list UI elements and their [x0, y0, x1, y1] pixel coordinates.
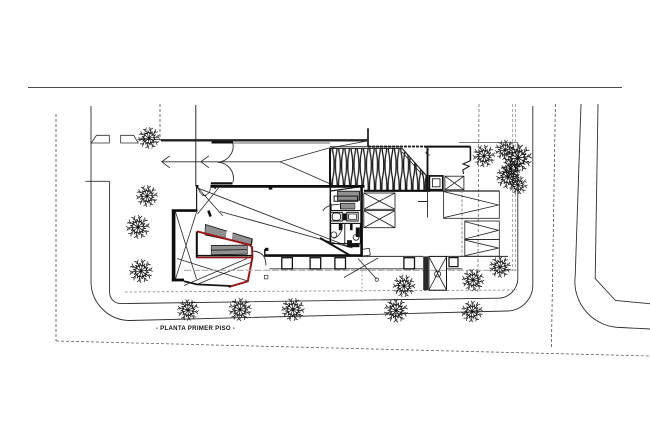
svg-text:- PLANTA PRIMER PISO -: - PLANTA PRIMER PISO - — [156, 325, 235, 332]
